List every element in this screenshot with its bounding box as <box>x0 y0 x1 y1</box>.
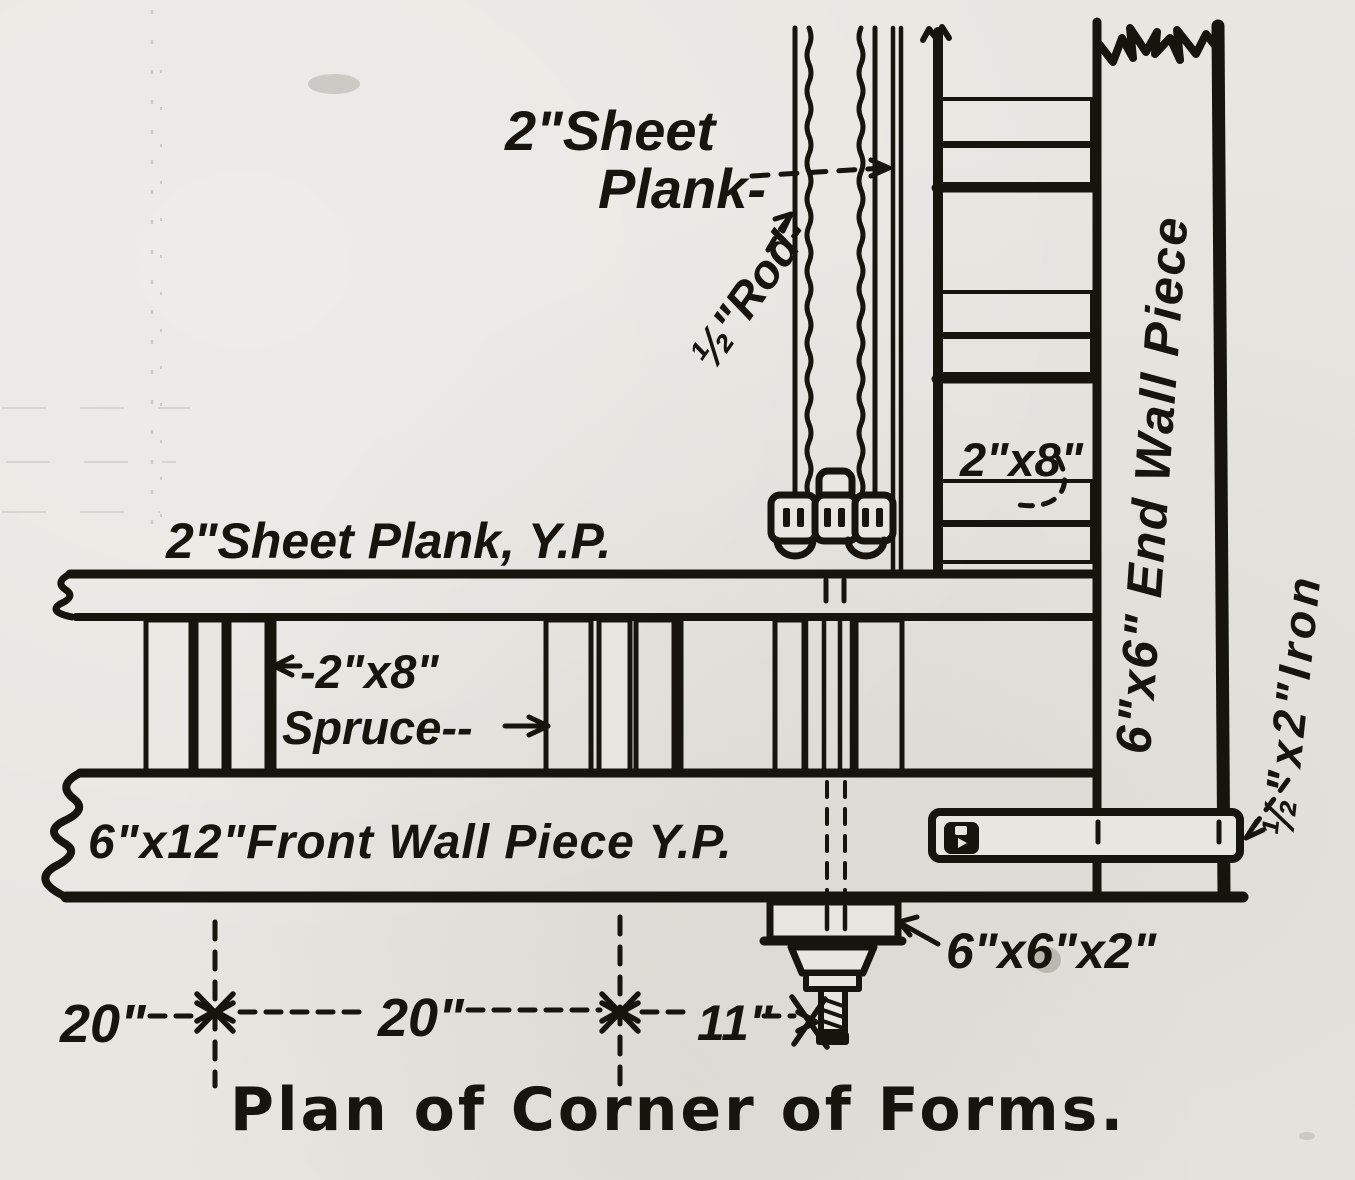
label-sheet-plank-top-line2: Plank- <box>598 157 766 220</box>
plan-diagram: 2"Sheet Plank- ½"Rod- 2"x8" 6"x6" End Wa… <box>0 0 1355 1180</box>
label-iron-strap: ½"x2"Iron <box>1251 570 1330 839</box>
label-corner-washer: 6"x6"x2" <box>946 923 1157 979</box>
iron-strap <box>932 812 1240 859</box>
figure-title: Plan of Corner of Forms. <box>230 1075 1126 1145</box>
plan-of-corner-of-forms-figure: 2"Sheet Plank- ½"Rod- 2"x8" 6"x6" End Wa… <box>0 0 1355 1180</box>
label-end-wall-piece: 6"x6" End Wall Piece <box>1105 214 1198 756</box>
label-half-inch-rod: ½"Rod- <box>679 209 819 377</box>
label-front-wall-piece: 6"x12"Front Wall Piece Y.P. <box>88 816 732 869</box>
label-spruce-line1: -2"x8" <box>300 645 439 698</box>
label-sheet-plank-yp: 2"Sheet Plank, Y.P. <box>165 513 611 569</box>
horizontal-sheet-plank <box>56 574 1096 617</box>
label-2x8-plank: 2"x8" <box>959 433 1084 486</box>
spruce-stud-row <box>146 620 902 773</box>
label-spruce-line2: Spruce-- <box>282 701 473 754</box>
end-wall-plank-stack <box>936 99 1097 562</box>
dim-11: 11" <box>697 995 774 1051</box>
dim-20-mid: 20" <box>377 988 465 1048</box>
half-inch-rods <box>795 28 875 499</box>
bottom-rod-clamp <box>764 902 902 1045</box>
label-sheet-plank-top-line1: 2"Sheet <box>504 99 718 162</box>
dim-20-left: 20" <box>59 994 147 1054</box>
